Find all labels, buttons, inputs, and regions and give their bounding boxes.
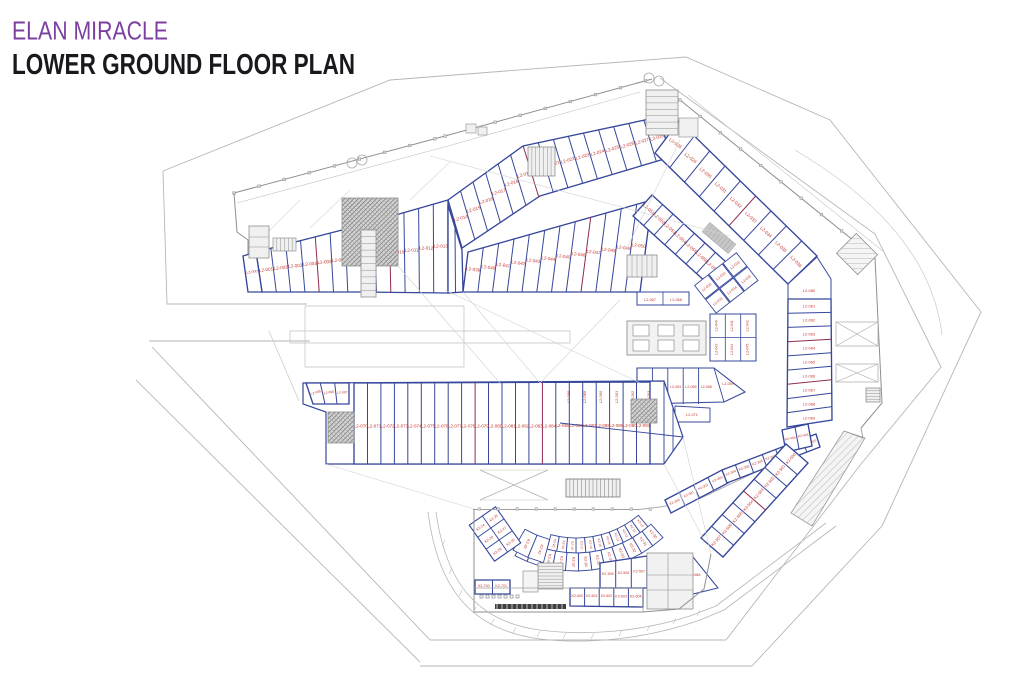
- svg-text:L2-044: L2-044: [730, 344, 734, 355]
- svg-text:L2-068: L2-068: [803, 402, 816, 407]
- svg-text:L2-004: L2-004: [303, 261, 318, 267]
- svg-text:L2-077: L2-077: [448, 423, 463, 428]
- svg-text:L2-061: L2-061: [803, 304, 816, 309]
- svg-text:L2-080: L2-080: [803, 288, 816, 293]
- svg-text:ELAN MIRACLE: ELAN MIRACLE: [12, 16, 168, 46]
- svg-text:K2-506: K2-506: [618, 571, 630, 575]
- svg-text:L2-080: L2-080: [488, 423, 503, 428]
- svg-text:L2-091: L2-091: [636, 423, 651, 428]
- svg-text:L2-066: L2-066: [803, 374, 816, 379]
- svg-text:L2-089: L2-089: [609, 423, 624, 428]
- svg-text:L2-083: L2-083: [529, 423, 544, 428]
- svg-text:L2-084: L2-084: [542, 423, 557, 428]
- svg-text:L2-042: L2-042: [745, 320, 749, 331]
- svg-text:K2-603: K2-603: [615, 594, 627, 598]
- svg-text:L2-012: L2-012: [419, 246, 434, 251]
- svg-text:L2-078: L2-078: [461, 423, 476, 428]
- svg-text:L2-071: L2-071: [367, 424, 382, 429]
- svg-text:LOWER GROUND FLOOR PLAN: LOWER GROUND FLOOR PLAN: [12, 49, 355, 81]
- svg-text:L2-055: L2-055: [685, 385, 696, 389]
- svg-text:K2-602: K2-602: [601, 594, 613, 598]
- svg-text:K2-604: K2-604: [630, 595, 642, 599]
- svg-text:L2-067: L2-067: [644, 298, 656, 302]
- svg-text:L2-070: L2-070: [354, 424, 369, 429]
- svg-text:L2-072: L2-072: [381, 424, 396, 429]
- svg-text:L2-073: L2-073: [394, 424, 409, 429]
- svg-text:L2-076: L2-076: [434, 423, 449, 428]
- svg-text:L2-059: L2-059: [722, 382, 733, 386]
- svg-text:L2-090: L2-090: [598, 390, 603, 403]
- svg-text:L2-043: L2-043: [715, 344, 719, 355]
- svg-text:L2-013: L2-013: [434, 244, 449, 249]
- svg-text:L2-005: L2-005: [317, 259, 332, 265]
- svg-text:L2-054: L2-054: [670, 385, 681, 389]
- svg-text:K2-700: K2-700: [478, 584, 490, 588]
- svg-text:L2-088: L2-088: [566, 390, 571, 403]
- svg-text:L2-045: L2-045: [745, 344, 749, 355]
- svg-text:L2-090: L2-090: [623, 423, 638, 428]
- svg-text:K2-701: K2-701: [495, 584, 507, 588]
- svg-text:K2-37: K2-37: [571, 557, 575, 567]
- svg-text:K2-17: K2-17: [579, 541, 583, 550]
- svg-text:L2-069: L2-069: [803, 416, 816, 421]
- svg-text:L2-075: L2-075: [421, 423, 436, 428]
- svg-text:K2-36: K2-36: [583, 556, 588, 566]
- svg-text:L2-011: L2-011: [405, 247, 419, 252]
- svg-text:L2-074: L2-074: [407, 424, 422, 429]
- svg-text:K2-601: K2-601: [586, 594, 598, 598]
- svg-text:L2-071: L2-071: [686, 413, 698, 417]
- svg-text:L2-063: L2-063: [803, 332, 816, 337]
- svg-text:L2-079: L2-079: [475, 423, 490, 428]
- svg-text:L2-040: L2-040: [715, 320, 719, 331]
- svg-text:L2-041: L2-041: [730, 320, 734, 331]
- svg-text:L2-064: L2-064: [803, 346, 816, 351]
- svg-text:L2-067: L2-067: [803, 388, 816, 393]
- svg-text:L2-065: L2-065: [803, 360, 816, 365]
- svg-text:K2-18: K2-18: [570, 541, 574, 550]
- svg-text:K2-600: K2-600: [572, 594, 584, 598]
- svg-text:L2-091: L2-091: [614, 390, 619, 403]
- svg-text:K2-507: K2-507: [633, 570, 645, 574]
- svg-text:L2-068: L2-068: [670, 298, 682, 302]
- svg-text:L2-097: L2-097: [337, 390, 348, 395]
- svg-text:L2-056: L2-056: [701, 385, 712, 389]
- svg-text:L2-082: L2-082: [515, 423, 530, 428]
- svg-text:L2-081: L2-081: [502, 423, 517, 428]
- svg-text:K2-505: K2-505: [602, 572, 614, 576]
- svg-text:L2-089: L2-089: [582, 390, 587, 403]
- svg-text:L2-062: L2-062: [803, 318, 816, 323]
